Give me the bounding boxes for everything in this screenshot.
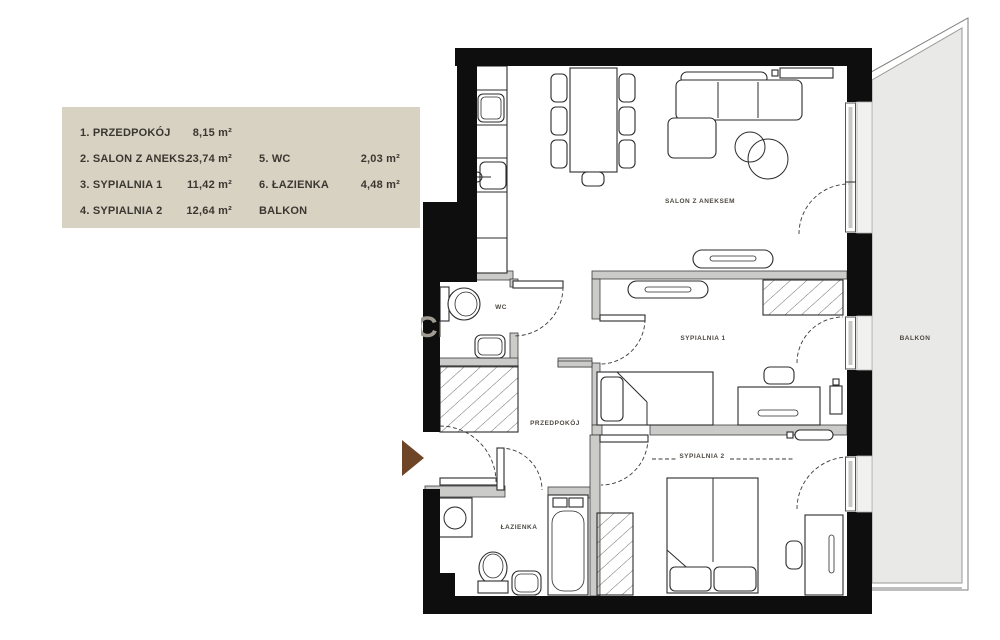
label-przedpokoj: PRZEDPOKÓJ xyxy=(530,418,580,427)
single-bed xyxy=(597,372,713,425)
bathroom-door xyxy=(497,448,542,490)
label-salon: SALON Z ANEKSEM xyxy=(665,198,735,205)
legend-row: 2. SALON Z ANEKS. 23,74 m² 5. WC 2,03 m² xyxy=(80,146,400,172)
balcony xyxy=(864,18,968,590)
legend-item-area: 11,42 m² xyxy=(180,179,232,191)
coffee-tables xyxy=(735,132,788,179)
entrance-arrow-icon xyxy=(402,440,424,476)
legend-item-name: 1. PRZEDPOKÓJ xyxy=(80,127,180,139)
kitchen-sink xyxy=(480,162,506,189)
legend-item-area: 4,48 m² xyxy=(357,179,400,191)
wc-sink xyxy=(475,335,505,358)
desk xyxy=(738,387,820,425)
label-sypialnia1: SYPIALNIA 1 xyxy=(680,335,725,342)
label-sypialnia2: SYPIALNIA 2 xyxy=(679,453,724,460)
wc-door xyxy=(513,281,563,336)
wc-toilet xyxy=(440,287,480,321)
floorplan-page: SALON Z ANEKSEM SYPIALNIA 1 SYPIALNIA 2 … xyxy=(0,0,1000,640)
salon-window xyxy=(845,102,872,233)
bath-sink xyxy=(512,571,541,595)
toilet xyxy=(478,552,508,593)
legend-item-area: 2,03 m² xyxy=(357,153,400,165)
legend-item-area: 8,15 m² xyxy=(180,127,232,139)
radiator xyxy=(628,281,708,298)
wall-radiator xyxy=(830,386,842,414)
washing-machine xyxy=(438,498,472,537)
wardrobe xyxy=(597,513,633,595)
bedroom1-furniture xyxy=(597,280,843,425)
salon-radiator xyxy=(693,250,773,268)
desk-chair xyxy=(786,541,802,569)
wardrobe xyxy=(763,280,843,315)
legend-item-name: BALKON xyxy=(259,205,357,217)
legend-item-name: 4. SYPIALNIA 2 xyxy=(80,205,180,217)
legend-row: 1. PRZEDPOKÓJ 8,15 m² xyxy=(80,120,400,146)
label-lazienka: ŁAZIENKA xyxy=(501,524,538,531)
legend-item-area: 23,74 m² xyxy=(180,153,232,165)
floorplan-drawing: SALON Z ANEKSEM SYPIALNIA 1 SYPIALNIA 2 … xyxy=(0,0,1000,640)
desk xyxy=(805,515,843,595)
tv-shelf xyxy=(772,68,833,78)
legend-row: 3. SYPIALNIA 1 11,42 m² 6. ŁAZIENKA 4,48… xyxy=(80,172,400,198)
bedroom2-window-swing xyxy=(797,457,849,509)
legend-item-name: 5. WC xyxy=(259,153,357,165)
legend-item-name: 6. ŁAZIENKA xyxy=(259,179,357,191)
legend-row: 4. SYPIALNIA 2 12,64 m² BALKON xyxy=(80,198,400,224)
label-wc: WC xyxy=(495,304,507,311)
hall-cabinet xyxy=(558,361,592,367)
bedroom1-window-swing xyxy=(797,317,843,363)
kitchen-counter xyxy=(472,66,507,273)
bathtub xyxy=(548,495,588,595)
dining-table xyxy=(551,68,635,186)
legend-item-name: 3. SYPIALNIA 1 xyxy=(80,179,180,191)
legend-item-name: 2. SALON Z ANEKS. xyxy=(80,153,180,165)
radiator xyxy=(795,430,833,440)
desk-chair xyxy=(764,367,794,384)
balcony-door-swing xyxy=(799,184,849,234)
double-bed xyxy=(667,478,758,593)
legend-panel: 1. PRZEDPOKÓJ 8,15 m² 2. SALON Z ANEKS. … xyxy=(62,107,420,228)
hall-wardrobe xyxy=(440,366,518,432)
bedroom2-door xyxy=(600,435,648,485)
bedroom2-window xyxy=(846,456,873,512)
bathroom-fixtures xyxy=(438,495,588,595)
bedroom1-window xyxy=(846,316,873,370)
bedroom1-door xyxy=(600,315,645,364)
legend-item-area: 12,64 m² xyxy=(180,205,232,217)
entrance-door xyxy=(440,426,498,485)
label-balkon: BALKON xyxy=(900,335,931,342)
